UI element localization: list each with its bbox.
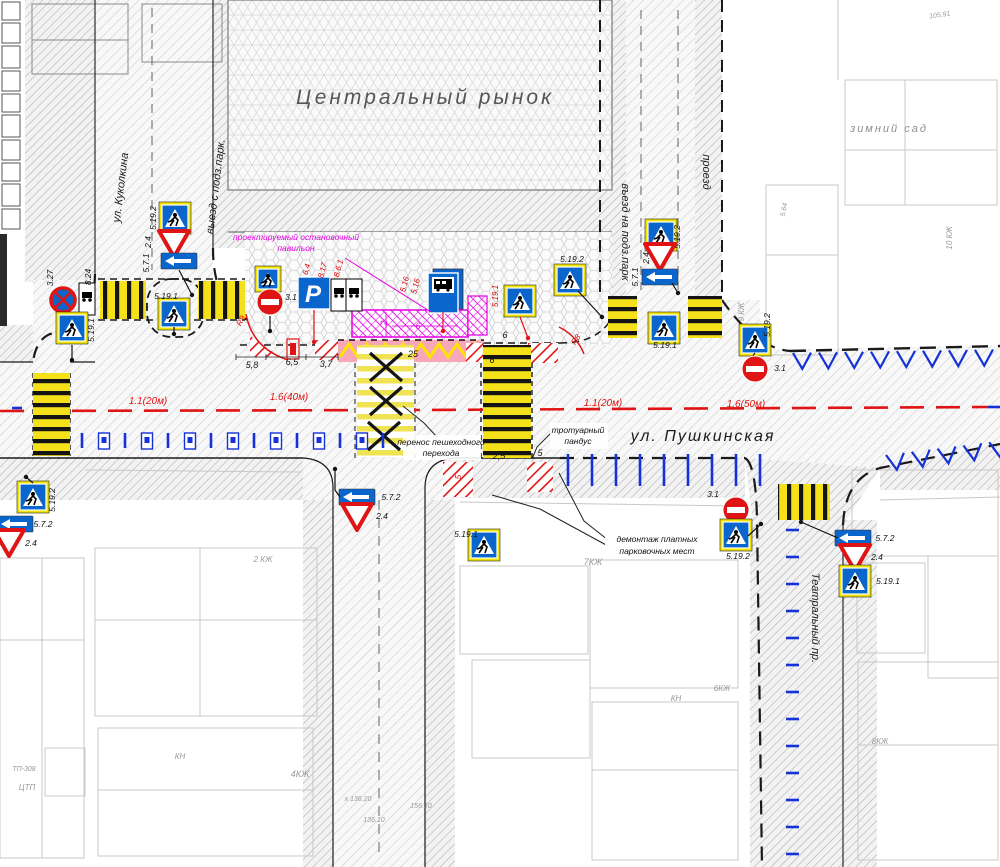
sign-code-label: 3.1 <box>774 363 786 373</box>
background-label: 136.10 <box>363 817 385 824</box>
sign-code-label: 5.19.1 <box>86 318 96 342</box>
sign-code-label: 5.19.2 <box>47 488 57 512</box>
sign-ped <box>839 565 871 597</box>
crossing-kukolkina-2 <box>198 281 245 319</box>
dimension-label: 3,7 <box>320 359 334 369</box>
red-code-label: 5.19.1 <box>491 285 500 307</box>
sign-bus <box>428 269 463 313</box>
svg-text:P: P <box>305 281 322 308</box>
traffic-plan-canvas: 3.278.245.19.15.19.15.19.22.45.7.13.1P5.… <box>0 0 1000 867</box>
sign-code-label: 5.19.1 <box>454 529 478 539</box>
sign-code-label: 5.7.2 <box>34 519 53 529</box>
sign-parking: P <box>298 277 330 309</box>
background-label: х 136.20 <box>344 796 372 803</box>
marking-length-label: 1.6(40м) <box>270 392 309 403</box>
sign-arrow <box>642 269 678 285</box>
street-label-entry-underground-parking: въезд на подз.парк <box>619 183 631 281</box>
background-label: 6КЖ <box>714 684 731 693</box>
sign-ped <box>255 266 281 292</box>
sign-code-label: 5.19.1 <box>154 291 178 301</box>
sign-code-label: 3.1 <box>707 489 719 499</box>
crossing-entry-1 <box>608 296 637 338</box>
parking-demolition-note-line: парковочных мест <box>619 546 694 556</box>
sign-ped <box>158 298 190 330</box>
sign-ped <box>720 519 752 551</box>
background-label: 7КЖ <box>584 557 603 567</box>
sign-code-label: 5.7.2 <box>876 533 895 543</box>
sign-ped <box>554 264 586 296</box>
sign-code-label: 3.27 <box>45 269 55 286</box>
traffic-plan-svg: 3.278.245.19.15.19.15.19.22.45.7.13.1P5.… <box>0 0 1000 867</box>
sign-no-entry <box>257 289 283 315</box>
crossing-move-note-line: перехода <box>423 448 460 458</box>
sign-code-label: 2.4 <box>870 552 883 562</box>
winter-garden-label: зимний сад <box>849 123 928 135</box>
background-label: ЦТП <box>19 783 36 792</box>
dimension-label: 5,8 <box>246 360 259 370</box>
sign-code-label: 5.19.2 <box>560 254 584 264</box>
sign-ped <box>17 481 49 513</box>
dimension-label: 25 <box>407 349 419 359</box>
sign-plate <box>331 279 347 311</box>
sign-plate <box>346 279 362 311</box>
background-label: 2 КЖ <box>253 555 273 564</box>
crossing-kukolkina-1 <box>100 281 146 319</box>
dimension-label: 6 <box>415 321 420 331</box>
sign-no-stop <box>51 288 75 312</box>
street-label-teatralny: Театральный пр. <box>809 573 821 663</box>
crossing-entry-2 <box>688 296 722 338</box>
background-label: 10 КЖ <box>945 226 954 250</box>
sign-code-label: 5.19.2 <box>726 551 750 561</box>
sign-code-label: 2.4 <box>641 252 651 265</box>
background-label: 4КЖ <box>291 769 310 779</box>
sidewalk-ramp-note-line: тротуарный <box>552 425 605 435</box>
background-label: 105.91 <box>929 11 951 21</box>
background-label: КН <box>671 694 682 703</box>
red-code-label: 5 <box>454 474 463 479</box>
frame-mark <box>0 234 7 326</box>
dimension-label: 2,5 <box>492 451 507 461</box>
dimension-label: 6,5 <box>286 357 300 367</box>
sign-yield <box>0 530 24 556</box>
dimension-label: 6 <box>502 330 507 340</box>
sign-plate <box>79 283 95 315</box>
dimension-label: 2 <box>379 320 389 326</box>
dimension-label: 6 <box>489 355 494 365</box>
marking-length-label: 1.6(50м) <box>727 399 766 410</box>
sign-ped <box>56 312 88 344</box>
sign-code-label: 5.7.1 <box>141 253 151 272</box>
parking-demolition-note-line: демонтаж платных <box>617 534 699 544</box>
street-label-pushkinskaya: ул. Пушкинская <box>630 428 776 445</box>
background-label: КН <box>175 752 186 761</box>
central-market-label: Центральный рынок <box>296 86 554 109</box>
crossing-west <box>33 373 70 456</box>
pavilion-note-line: павильон <box>277 243 315 253</box>
sign-ped <box>504 285 536 317</box>
background-label: 8КЖ <box>872 737 889 746</box>
marking-length-label: 1.1(20м) <box>584 398 623 409</box>
background-label: ТП-308 <box>12 766 35 773</box>
background-label: 9 КЖ <box>737 302 746 321</box>
crossing-move-note-line: перенос пешеходного <box>397 437 485 447</box>
background-label: 156.10 <box>410 803 432 810</box>
street-label-passage: проезд <box>700 154 712 189</box>
crossing-teatralny <box>778 484 830 520</box>
sign-code-label: 2.4 <box>24 538 37 548</box>
sign-code-label: 8.24 <box>83 268 93 285</box>
sidewalk-ramp-note-line: пандус <box>564 436 592 446</box>
sign-code-label: 5.19.1 <box>653 340 677 350</box>
sign-code-label: 2.4 <box>143 236 153 249</box>
sign-code-label: 5.19.2 <box>148 206 158 230</box>
sign-no-entry <box>742 356 768 382</box>
background-label: 5.64 <box>780 202 789 217</box>
sign-code-label: 5.7.2 <box>382 492 401 502</box>
sign-code-label: 5.19.2 <box>762 313 772 337</box>
pavilion-note-line: проектируемый остановочный <box>233 232 359 242</box>
sign-code-label: 3.1 <box>285 292 297 302</box>
marking-length-label: 1.1(20м) <box>129 396 168 407</box>
sign-code-label: 2.4 <box>375 511 388 521</box>
sign-arrow <box>161 253 197 269</box>
legend-strip <box>2 2 20 229</box>
sign-code-label: 5.19.1 <box>876 576 900 586</box>
